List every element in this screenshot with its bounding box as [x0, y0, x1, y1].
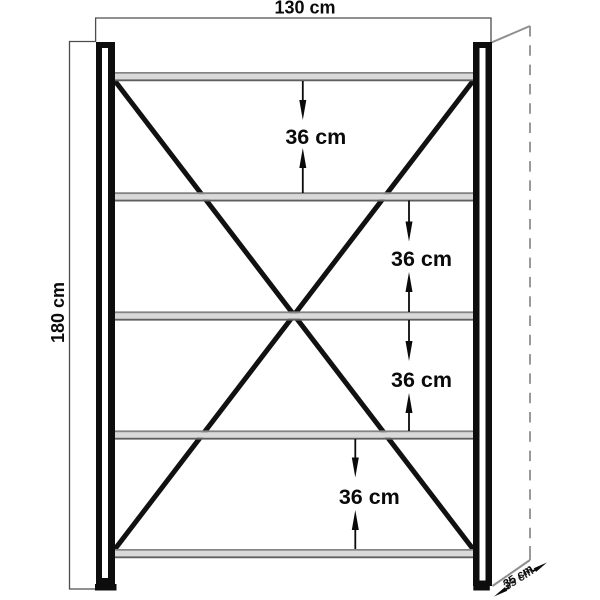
svg-text:36 cm: 36 cm	[391, 368, 452, 392]
svg-text:36 cm: 36 cm	[339, 485, 400, 509]
svg-text:130 cm: 130 cm	[274, 0, 335, 18]
svg-text:180 cm: 180 cm	[48, 282, 68, 343]
svg-text:36 cm: 36 cm	[285, 125, 346, 149]
svg-text:36 cm: 36 cm	[391, 247, 452, 271]
